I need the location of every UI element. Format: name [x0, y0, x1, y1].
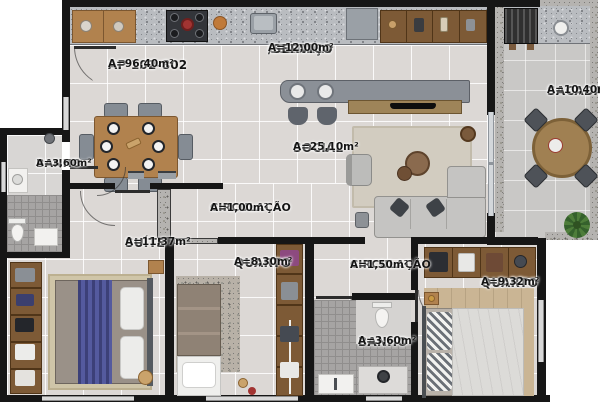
quarto1-clothes-2: [281, 282, 298, 300]
cozinha-area: A=12,00m²: [268, 42, 334, 54]
living-plant: [460, 126, 476, 142]
balcony-plant-center: [573, 221, 581, 229]
console-bench-1: [128, 171, 144, 179]
circulacao2-area: A=1,50m²: [350, 259, 408, 271]
suite-door-leaf: [115, 190, 150, 193]
plate-6: [142, 158, 155, 171]
social-area: A=25,10m²: [293, 141, 359, 153]
quarto2-shelf-div-1: [452, 247, 453, 278]
wall-bath-left-top: [0, 128, 70, 135]
plate-3: [100, 140, 113, 153]
cabinet-divider: [103, 10, 104, 43]
quarto2-headboard: [422, 306, 426, 398]
quarto2-duvet: [452, 308, 524, 396]
window-left-upper: [63, 97, 69, 130]
window-quarto1: [206, 396, 298, 401]
patio-glass-door-rail: [488, 162, 494, 165]
kitchen-sink-basin: [254, 16, 273, 30]
floor-plan: AP 102-802 A=96,40m² COZINHA /SERVIÇO A=…: [0, 0, 600, 404]
quarto2-door-leaf: [415, 290, 418, 322]
window-banho2: [366, 396, 402, 401]
barbecue-grill: [504, 8, 538, 44]
plate-stack: [80, 20, 92, 32]
quarto2-area: A=9,32m²: [481, 276, 539, 288]
burner-3: [170, 29, 179, 38]
wall-balcony-div-upper: [487, 0, 495, 115]
suite-wardrobe-item-5: [15, 370, 35, 386]
shelf-item-4: [466, 19, 475, 31]
plate-1: [107, 122, 120, 135]
shelf-divider-2: [432, 10, 433, 43]
quarto1-decor-2: [248, 387, 256, 395]
banho2-area: A=3,60m²: [358, 335, 416, 347]
window-quarto2: [538, 300, 544, 362]
red-pot: [181, 18, 194, 31]
quarto2-clothes-2: [458, 253, 475, 272]
suite-pillow-1: [120, 287, 144, 330]
wall-bath-left-right-b: [62, 170, 70, 258]
shower-tray-1: [34, 228, 58, 246]
side-table: [355, 212, 369, 228]
circulacao1-area: A=1,00m²: [210, 202, 268, 214]
wall-circ2-top-b: [411, 237, 538, 244]
wall-suite-quarto: [165, 237, 174, 402]
dining-chair-right: [178, 134, 193, 160]
shelf-divider-3: [459, 10, 460, 43]
console-bench-2: [158, 171, 176, 179]
wall-quarto1-top: [218, 237, 310, 244]
suite-wardrobe-item-4: [15, 344, 35, 360]
suite-decor: [138, 370, 153, 385]
suite-nightstand: [148, 260, 164, 274]
burner-4: [195, 29, 204, 38]
quarto2-pillow-1: [427, 312, 452, 350]
suite-wardrobe-item-1: [15, 268, 35, 282]
vanity-2-faucet: [334, 378, 337, 390]
quarto2-clothes-3: [486, 253, 503, 272]
quarto1-clothes-3: [280, 326, 299, 342]
sofa-cushion-line-1: [410, 199, 411, 229]
frying-pan: [213, 16, 227, 30]
quarto2-shelf-div-3: [508, 247, 509, 278]
quarto2-pillow-2: [427, 353, 452, 391]
suite-wardrobe-item-2: [16, 294, 34, 306]
quarto2-lamp: [428, 295, 435, 302]
suite-area: A=11,37m²: [125, 236, 191, 248]
quarto2-clothes-1: [429, 252, 448, 272]
suite-bed-runner: [78, 280, 112, 384]
unit-area: A=96,40m²: [108, 58, 174, 70]
plate-2: [142, 122, 155, 135]
balcony-plate: [548, 138, 563, 153]
window-bath-left: [1, 162, 6, 192]
vanity-1-sink: [12, 174, 23, 185]
sacada-area: A=10,40m²: [547, 84, 600, 96]
island-sink-1: [289, 83, 306, 100]
wall-top: [62, 0, 540, 7]
coffee-table-small: [397, 166, 412, 181]
shower-head-1: [44, 133, 55, 144]
shelf-item-1: [388, 20, 397, 29]
entry-door-leaf: [74, 46, 116, 49]
balcony-gravel-left: [495, 0, 504, 232]
shelf-item-3: [440, 17, 448, 32]
kitchen-cabinet-gray: [346, 8, 378, 40]
burner-2: [195, 13, 204, 22]
banho2-drain: [377, 370, 390, 383]
tv: [390, 103, 436, 109]
plate-4: [152, 140, 165, 153]
suite-wardrobe-item-3: [15, 318, 34, 332]
barstool-1: [288, 107, 308, 125]
quarto1-bed-blanket: [177, 284, 221, 356]
wall-suite-nook: [157, 189, 171, 238]
wall-banho2-right-b: [411, 322, 418, 402]
quarto2-shelf-div-2: [480, 247, 481, 278]
balcony-sink: [553, 20, 569, 36]
quarto2-shelf-item: [514, 255, 527, 268]
quarto1-area: A=8,30m²: [234, 256, 292, 268]
sofa-chaise: [447, 166, 486, 198]
armchair-back: [346, 154, 352, 186]
wall-bath-left-right-a: [62, 130, 70, 142]
barstool-2: [317, 107, 337, 125]
quarto1-clothes-4: [280, 362, 299, 378]
bowl: [113, 21, 124, 32]
island-sink-2: [317, 83, 334, 100]
wall-bath-left-bottom: [0, 252, 70, 258]
shelf-item-2: [414, 18, 424, 32]
quarto1-pillow: [182, 362, 216, 388]
banho-esq-area: A=3,60m²: [36, 158, 92, 170]
window-suite: [42, 396, 134, 401]
burner-1: [170, 13, 179, 22]
wall-quarto1-right: [305, 237, 314, 402]
grill-leg-1: [509, 44, 516, 50]
wall-circ2-top-a: [314, 237, 365, 244]
wall-banho2-top: [352, 293, 418, 300]
shelf-divider-1: [406, 10, 407, 43]
sofa-cushion-line-2: [446, 199, 447, 229]
grill-leg-2: [527, 44, 534, 50]
quarto1-decor-1: [238, 378, 248, 388]
